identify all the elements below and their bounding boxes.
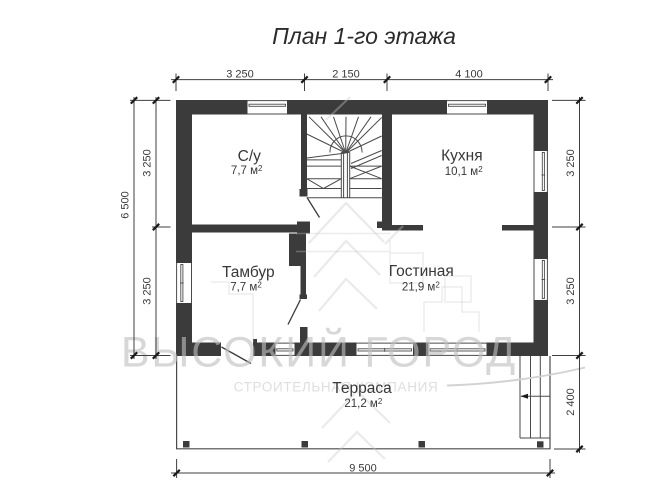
svg-text:План 1-го этажа: План 1-го этажа	[272, 23, 456, 49]
svg-text:7,7 м2: 7,7 м2	[230, 280, 262, 293]
svg-text:9 500: 9 500	[349, 462, 377, 474]
svg-text:3 250: 3 250	[142, 149, 154, 177]
svg-text:Кухня: Кухня	[441, 147, 482, 164]
svg-text:2 150: 2 150	[332, 68, 360, 80]
svg-text:10,1 м2: 10,1 м2	[445, 165, 483, 178]
svg-text:21,9 м2: 21,9 м2	[402, 280, 440, 293]
svg-text:ВЫСОКИЙ ГОРОД: ВЫСОКИЙ ГОРОД	[121, 328, 517, 377]
svg-text:3 250: 3 250	[142, 277, 154, 305]
svg-text:3 250: 3 250	[565, 277, 577, 305]
svg-text:21,2 м2: 21,2 м2	[344, 397, 382, 410]
svg-text:4 100: 4 100	[455, 68, 483, 80]
svg-text:3 250: 3 250	[565, 149, 577, 177]
svg-text:Терраса: Терраса	[332, 380, 392, 397]
svg-text:Тамбур: Тамбур	[222, 264, 275, 281]
svg-text:7,7 м2: 7,7 м2	[231, 164, 263, 177]
svg-text:3 250: 3 250	[226, 68, 254, 80]
svg-text:С/у: С/у	[238, 148, 262, 165]
svg-text:Гостиная: Гостиная	[389, 263, 454, 280]
svg-text:6 500: 6 500	[120, 191, 132, 219]
svg-text:2 400: 2 400	[565, 388, 577, 416]
